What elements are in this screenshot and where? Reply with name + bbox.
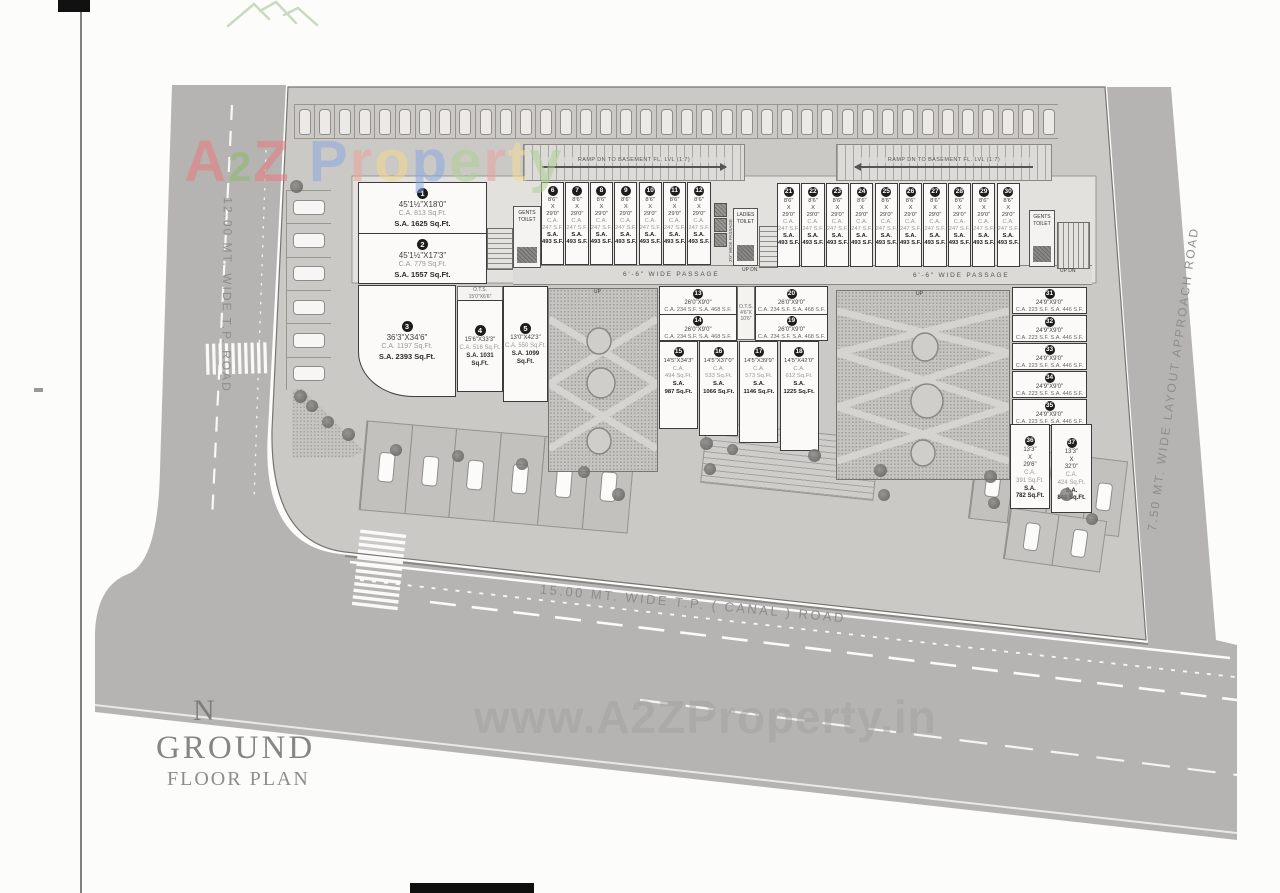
unit-number: 34 [1045, 373, 1055, 383]
logo-letter: Z [253, 128, 290, 195]
plan-title: GROUND [156, 730, 315, 767]
dim-x: X [697, 204, 701, 211]
unit-number: 22 [808, 187, 818, 197]
shop-unit: 25 8'6" X 29'0" C.A. 247 S.F. S.A. 493 S… [875, 183, 898, 267]
dim-w: 8'6" [621, 197, 631, 204]
parking-stall [656, 105, 676, 138]
units-31-35: 31 24'9"X9'0" C.A. 223 S.F. S.A. 446 S.F… [1012, 287, 1085, 427]
parking-stall [998, 105, 1018, 138]
courtyard-left [548, 288, 658, 472]
logo-letter [291, 128, 309, 195]
unit-3: 3 36'3"X34'6" C.A. 1197 Sq.Ft. S.A. 2393… [358, 285, 456, 397]
parking-stall [616, 105, 636, 138]
scan-corner-mark [58, 0, 90, 12]
brand-logo: A2Z Property [148, 0, 564, 195]
unit-number: 17 [754, 347, 764, 357]
shop-unit: 26 8'6" X 29'0" C.A. 247 S.F. S.A. 493 S… [899, 183, 922, 267]
ca-value: 247 S.F. [827, 226, 848, 233]
sa-value: 987 Sq.Ft. [665, 389, 693, 397]
wc-cell [517, 247, 537, 263]
ca-value: 247 S.F. [640, 225, 661, 232]
tree-icon [612, 488, 625, 501]
dim-x: X [982, 205, 986, 212]
ramp-right: RAMP DN TO BASEMENT FL. LVL (1:7) [836, 144, 1052, 181]
ramp-arrow-left-icon [855, 166, 1033, 168]
ca-value: 573 Sq.Ft. [745, 373, 772, 381]
passage-label-right: 6'-6" WIDE PASSAGE [913, 272, 1010, 279]
unit-number: 14 [693, 316, 703, 326]
unit-number: 31 [1045, 289, 1055, 299]
dim-d: 29'0" [668, 211, 681, 218]
shop-unit: 30 8'6" X 29'0" C.A. 247 S.F. S.A. 493 S… [997, 183, 1020, 267]
logo-letter: o [374, 128, 411, 195]
parking-stall [676, 105, 696, 138]
sa-value: 493 S.F. [924, 240, 945, 247]
strip-unit: 33 24'9"X9'0" C.A. 223 S.F. S.A. 446 S.F… [1012, 343, 1087, 370]
sa-label: S.A. [905, 233, 916, 240]
unit-dims: 14'5"X42'0" [784, 358, 814, 366]
up-label: UP [916, 291, 923, 297]
unit-number: 27 [930, 187, 940, 197]
dim-d: 29'0" [619, 211, 632, 218]
parking-stall [958, 105, 978, 138]
dim-w: 13'3" [1023, 447, 1036, 455]
parking-stall [449, 429, 501, 521]
tree-icon [1086, 513, 1098, 525]
unit-number: 11 [670, 186, 680, 196]
ramp-label: RAMP DN TO BASEMENT FL. LVL (1:7) [855, 157, 1033, 163]
dim-x: X [648, 204, 652, 211]
unit-dims: 14'5"X39'9" [744, 358, 774, 366]
parking-stall [917, 105, 937, 138]
tree-icon [306, 400, 318, 412]
dim-d: 29'0" [929, 212, 942, 219]
parking-stall [287, 323, 331, 356]
unit-number: 10 [645, 186, 655, 196]
unit-number: 23 [832, 187, 842, 197]
sa-label: S.A. [547, 232, 558, 239]
unit-super-area: S.A. 1031 Sq.Ft. [458, 352, 502, 368]
dim-d: 32'0" [1065, 464, 1078, 472]
tree-icon [984, 470, 997, 483]
shop-unit: 15 14'5"X34'3" C.A. 494 Sq.Ft. S.A. 987 … [659, 341, 698, 429]
logo-letter: P [309, 128, 350, 195]
unit-number: 7 [572, 186, 582, 196]
tree-icon [452, 450, 464, 462]
tree-icon [874, 464, 887, 477]
dim-x: X [860, 205, 864, 212]
unit-dims: 36'3"X34'6" [387, 333, 428, 343]
ca-label: C.A. [807, 219, 818, 226]
ca-value: 247 S.F. [591, 225, 612, 232]
ca-label: C.A. [978, 219, 989, 226]
ca-value: 494 Sq.Ft. [665, 373, 692, 381]
sa-value: 493 S.F. [615, 239, 636, 246]
sa-value: 1225 Sq.Ft. [784, 389, 815, 397]
shop-unit: 28 8'6" X 29'0" C.A. 247 S.F. S.A. 493 S… [948, 183, 971, 267]
unit-area: C.A. 223 S.F. S.A. 446 S.F. [1016, 307, 1083, 313]
dim-d: 29'0" [831, 212, 844, 219]
shop-unit: 24 8'6" X 29'0" C.A. 247 S.F. S.A. 493 S… [850, 183, 873, 267]
tree-icon [700, 437, 713, 450]
ca-value: 247 S.F. [998, 226, 1019, 233]
sa-value: 493 S.F. [827, 240, 848, 247]
dim-x: X [811, 205, 815, 212]
strip-unit: 34 24'9"X9'0" C.A. 223 S.F. S.A. 446 S.F… [1012, 371, 1087, 398]
unit-dims: 24'9"X9'0" [1036, 412, 1063, 420]
unit-number: 19 [787, 316, 797, 326]
parking-stall [978, 105, 998, 138]
unit-dims: 14'5"X37'0" [704, 358, 734, 366]
unit-super-area: S.A. 2393 Sq.Ft. [379, 352, 435, 361]
ca-label: C.A. [620, 218, 631, 225]
unit-20: 20 26'0"X9'0" C.A. 234 S.F. S.A. 468 S.F… [755, 286, 828, 315]
sa-value: 493 S.F. [591, 239, 612, 246]
unit-area: C.A. 234 S.F. S.A. 468 S.F. [664, 307, 731, 313]
wc-cell [737, 245, 754, 261]
ca-label: C.A. [856, 219, 867, 226]
unit-number: 12 [694, 186, 704, 196]
ca-value: 247 S.F. [542, 225, 563, 232]
dim-w: 8'6" [906, 198, 916, 205]
unit-dims: 13'0"X42'3" [510, 335, 541, 343]
passage-band: 6'-6" WIDE PASSAGE 6'-6" WIDE PASSAGE [513, 265, 1092, 285]
parking-stall [287, 290, 331, 323]
unit-5: 5 13'0"X42'3" C.A. 550 Sq.Ft. S.A. 1099 … [503, 286, 548, 402]
logo-letter: 2 [228, 143, 253, 191]
parking-stall [576, 105, 596, 138]
staircase-left [487, 228, 513, 270]
unit-carpet-area: C.A. 516 Sq.Ft. [459, 345, 500, 353]
unit-area: C.A. 223 S.F. S.A. 446 S.F. [1016, 363, 1083, 369]
sa-label: S.A. [832, 233, 843, 240]
dim-d: 29'0" [571, 211, 584, 218]
sa-value: 493 S.F. [542, 239, 563, 246]
dim-x: X [599, 204, 603, 211]
ca-label: C.A. [571, 218, 582, 225]
ca-value: 247 S.F. [802, 226, 823, 233]
ramp-label: RAMP DN TO BASEMENT FL. LVL (1:7) [542, 157, 726, 163]
tree-icon [704, 463, 716, 475]
unit-dims: 45'1½"X17'3" [399, 251, 446, 261]
gents-toilet-right: GENTS TOILET [1029, 210, 1055, 267]
logo-letter: p [412, 128, 449, 195]
ca-value: 247 S.F. [566, 225, 587, 232]
unit-number: 16 [714, 347, 724, 357]
ca-label: C.A. [713, 366, 724, 374]
scan-edge-line [80, 0, 82, 893]
watermark: www.A2ZProperty.in [474, 690, 937, 744]
sa-value: 493 S.F. [664, 239, 685, 246]
north-indicator: N [193, 694, 215, 728]
ca-label: C.A. [753, 366, 764, 374]
shop-unit: 9 8'6" X 29'0" C.A. 247 S.F. S.A. 493 S.… [614, 182, 637, 265]
shops-21-30: 21 8'6" X 29'0" C.A. 247 S.F. S.A. 493 S… [777, 183, 1027, 267]
unit-number: 5 [520, 323, 531, 334]
unit-area: C.A. 234 S.F. S.A. 468 S.F. [758, 307, 825, 313]
unit-number: 36 [1025, 436, 1035, 446]
ca-label: C.A. [783, 219, 794, 226]
passage-label-left: 6'-6" WIDE PASSAGE [623, 271, 720, 278]
wc-cell [714, 203, 727, 217]
shop-unit: 8 8'6" X 29'0" C.A. 247 S.F. S.A. 493 S.… [590, 182, 613, 265]
staircase-right [1057, 222, 1090, 269]
dim-d: 29'0" [880, 212, 893, 219]
shop-unit: 23 8'6" X 29'0" C.A. 247 S.F. S.A. 493 S… [826, 183, 849, 267]
staircase-mid [759, 226, 778, 268]
scanned-floor-plan-page: A2Z Property www.A2ZProperty.in N GROUND… [0, 0, 1280, 893]
unit-dims: 26'0"X9'0" [684, 327, 711, 335]
logo-letter: t [508, 128, 529, 195]
shop-unit: 29 8'6" X 29'0" C.A. 247 S.F. S.A. 493 S… [972, 183, 995, 267]
dim-d: 29'0" [546, 211, 559, 218]
ots-mid: O.T.S. 4'6"X 10'6" [737, 286, 755, 340]
tree-icon [878, 489, 890, 501]
unit-19: 19 26'0"X9'0" C.A. 234 S.F. S.A. 468 S.F… [755, 314, 828, 341]
sa-label: S.A. [753, 381, 764, 389]
room-label: GENTS TOILET [518, 210, 535, 223]
unit-number: 26 [906, 187, 916, 197]
unit-37: 37 13'3" X 32'0" C.A. 424 Sq.Ft. S.A. 84… [1051, 424, 1092, 513]
tree-icon [516, 458, 528, 470]
dim-d: 29'0" [693, 211, 706, 218]
sa-label: S.A. [807, 233, 818, 240]
up-label: UP [594, 289, 601, 295]
tree-icon [988, 497, 1000, 509]
unit-number: 29 [979, 187, 989, 197]
gents-toilet-left: GENTS TOILET [513, 206, 541, 268]
unit-number: 3 [402, 321, 413, 332]
dim-w: 8'6" [930, 198, 940, 205]
logo-letter: e [449, 128, 483, 195]
strip-unit: 32 24'9"X9'0" C.A. 223 S.F. S.A. 446 S.F… [1012, 315, 1087, 342]
wc-cell [714, 218, 727, 232]
sa-label: S.A. [620, 232, 631, 239]
parking-stall [1018, 105, 1038, 138]
sa-label: S.A. [856, 233, 867, 240]
tree-icon [578, 466, 590, 478]
parking-stall [716, 105, 736, 138]
ca-value: 247 S.F. [900, 226, 921, 233]
unit-carpet-area: C.A. 813 Sq.Ft. [399, 210, 447, 219]
dim-d: 29'0" [855, 212, 868, 219]
parking-stall [1052, 515, 1106, 571]
shop-unit: 16 14'5"X37'0" C.A. 533 Sq.Ft. S.A. 1066… [699, 341, 738, 436]
dim-w: 8'6" [784, 198, 794, 205]
unit-number: 21 [784, 187, 794, 197]
unit-number: 20 [787, 289, 797, 299]
parking-stall [877, 105, 897, 138]
tree-icon [322, 416, 334, 428]
dim-x: X [787, 205, 791, 212]
dim-x: X [933, 205, 937, 212]
ca-value: 391 Sq.Ft. [1016, 478, 1044, 486]
room-label: LADIES TOILET [737, 212, 755, 225]
dim-w: 8'6" [833, 198, 843, 205]
ca-value: 533 Sq.Ft. [705, 373, 732, 381]
ca-label: C.A. [1066, 472, 1078, 480]
unit-area: C.A. 234 S.F. S.A. 468 S.F. [664, 334, 731, 340]
dim-d: 29'0" [807, 212, 820, 219]
sa-value: 1066 Sq.Ft. [703, 389, 734, 397]
ca-label: C.A. [954, 219, 965, 226]
sa-value: 493 S.F. [566, 239, 587, 246]
unit-super-area: S.A. 1557 Sq.Ft. [394, 270, 450, 279]
sa-value: 493 S.F. [949, 240, 970, 247]
unit-area: C.A. 234 S.F. S.A. 468 S.F. [758, 334, 825, 340]
ladies-toilet: LADIES TOILET [733, 208, 758, 266]
unit-carpet-area: C.A. 550 Sq.Ft. [505, 343, 546, 351]
parking-stall [287, 357, 331, 390]
ca-label: C.A. [596, 218, 607, 225]
strip-unit: 31 24'9"X9'0" C.A. 223 S.F. S.A. 446 S.F… [1012, 287, 1087, 314]
unit-13: 13 26'0"X9'0" C.A. 234 S.F. S.A. 468 S.F… [659, 286, 737, 315]
unit-dims: 26'0"X9'0" [778, 300, 805, 308]
unit-dims: 24'9"X9'0" [1036, 384, 1063, 392]
unit-number: 24 [857, 187, 867, 197]
sa-label: S.A. [954, 233, 965, 240]
unit-dims: 45'1½"X18'0" [399, 200, 446, 210]
tree-icon [727, 444, 738, 455]
shop-unit: 7 8'6" X 29'0" C.A. 247 S.F. S.A. 493 S.… [565, 182, 588, 265]
unit-number: 2 [417, 239, 428, 250]
shop-unit: 18 14'5"X42'0" C.A. 612 Sq.Ft. S.A. 1225… [780, 341, 819, 451]
dim-w: 8'6" [955, 198, 965, 205]
dim-x: X [551, 204, 555, 211]
dim-d: 29'6" [1023, 462, 1036, 470]
dim-d: 29'0" [595, 211, 608, 218]
ca-label: C.A. [905, 219, 916, 226]
wc-cell [1033, 246, 1051, 262]
dim-w: 8'6" [979, 198, 989, 205]
parking-column-left [286, 190, 331, 390]
sa-value: 493 S.F. [688, 239, 709, 246]
unit-super-area: S.A. 1099 Sq.Ft. [504, 350, 547, 366]
dim-w: 8'6" [645, 197, 655, 204]
ca-label: C.A. [547, 218, 558, 225]
unit-number: 37 [1067, 438, 1077, 448]
ramp-arrow-right-icon [542, 166, 726, 168]
parking-stall [287, 257, 331, 290]
dim-w: 8'6" [572, 197, 582, 204]
ca-label: C.A. [645, 218, 656, 225]
dim-w: 8'6" [808, 198, 818, 205]
unit-dims: 24'9"X9'0" [1036, 356, 1063, 364]
parking-stall [360, 421, 412, 513]
sa-label: S.A. [1024, 486, 1036, 494]
unit-number: 8 [596, 186, 606, 196]
dim-x: X [624, 204, 628, 211]
sa-label: S.A. [669, 232, 680, 239]
tree-icon [1060, 488, 1073, 501]
unit-number: 15 [674, 347, 684, 357]
sa-label: S.A. [693, 232, 704, 239]
dim-x: X [1069, 457, 1073, 465]
dim-x: X [957, 205, 961, 212]
sa-label: S.A. [1003, 233, 1014, 240]
ca-label: C.A. [793, 366, 804, 374]
parking-stall [837, 105, 857, 138]
scan-margin-mark [34, 388, 43, 392]
parking-stall [1038, 105, 1058, 138]
dim-x: X [884, 205, 888, 212]
shop-unit: 12 8'6" X 29'0" C.A. 247 S.F. S.A. 493 S… [687, 182, 710, 265]
unit-dims: 24'9"X9'0" [1036, 300, 1063, 308]
unit-dims: 24'9"X9'0" [1036, 328, 1063, 336]
wc-column [714, 203, 727, 248]
dim-d: 29'0" [782, 212, 795, 219]
dim-w: 8'6" [694, 197, 704, 204]
shop-unit: 27 8'6" X 29'0" C.A. 247 S.F. S.A. 493 S… [923, 183, 946, 267]
dim-x: X [673, 204, 677, 211]
ca-value: 247 S.F. [949, 226, 970, 233]
unit-dims: 15'6"X33'3" [465, 337, 496, 345]
dim-x: X [1006, 205, 1010, 212]
unit-number: 35 [1045, 401, 1055, 411]
shops-15-18: 15 14'5"X34'3" C.A. 494 Sq.Ft. S.A. 987 … [659, 341, 820, 451]
ca-value: 612 Sq.Ft. [785, 373, 812, 381]
sa-value: 493 S.F. [802, 240, 823, 247]
sa-value: 493 S.F. [640, 239, 661, 246]
sa-label: S.A. [793, 381, 804, 389]
parking-stall [493, 433, 545, 525]
ca-value: 247 S.F. [664, 225, 685, 232]
parking-stall [287, 223, 331, 256]
ca-label: C.A. [1024, 470, 1036, 478]
ca-value: 247 S.F. [851, 226, 872, 233]
unit-number: 33 [1045, 345, 1055, 355]
shops-6-12: 6 8'6" X 29'0" C.A. 247 S.F. S.A. 493 S.… [541, 182, 717, 265]
shop-unit: 10 8'6" X 29'0" C.A. 247 S.F. S.A. 493 S… [639, 182, 662, 265]
unit-number: 18 [794, 347, 804, 357]
parking-stall [797, 105, 817, 138]
narrow-passage-label: 3'0" WIDE PASSAGE [728, 219, 733, 262]
sa-label: S.A. [929, 233, 940, 240]
shop-unit: 11 8'6" X 29'0" C.A. 247 S.F. S.A. 493 S… [663, 182, 686, 265]
dim-x: X [1028, 455, 1032, 463]
shop-unit: 21 8'6" X 29'0" C.A. 247 S.F. S.A. 493 S… [777, 183, 800, 267]
ca-value: 424 Sq.Ft. [1058, 480, 1086, 488]
unit-number: 30 [1003, 187, 1013, 197]
parking-stall [777, 105, 797, 138]
sa-value: 493 S.F. [851, 240, 872, 247]
unit-carpet-area: C.A. 1197 Sq.Ft. [381, 343, 432, 352]
shop-unit: 17 14'5"X39'9" C.A. 573 Sq.Ft. S.A. 1146… [739, 341, 778, 443]
wc-cell [714, 233, 727, 247]
shop-unit: 22 8'6" X 29'0" C.A. 247 S.F. S.A. 493 S… [801, 183, 824, 267]
unit-number: 4 [475, 325, 486, 336]
tree-icon [294, 390, 307, 403]
unit-number: 28 [954, 187, 964, 197]
dim-x: X [835, 205, 839, 212]
logo-letter: r [483, 128, 508, 195]
dim-w: 8'6" [857, 198, 867, 205]
ca-label: C.A. [1003, 219, 1014, 226]
unit-area: C.A. 223 S.F. S.A. 446 S.F. [1016, 391, 1083, 397]
mountain-logo-icon [224, 0, 336, 28]
sa-value: 493 S.F. [876, 240, 897, 247]
sa-value: 493 S.F. [778, 240, 799, 247]
dim-w: 8'6" [881, 198, 891, 205]
sa-label: S.A. [645, 232, 656, 239]
ca-label: C.A. [669, 218, 680, 225]
parking-stall [757, 105, 777, 138]
sa-value: 493 S.F. [973, 240, 994, 247]
scan-bottom-mark [410, 883, 534, 893]
unit-number: 32 [1045, 317, 1055, 327]
sa-value: 493 S.F. [900, 240, 921, 247]
tree-icon [342, 428, 355, 441]
